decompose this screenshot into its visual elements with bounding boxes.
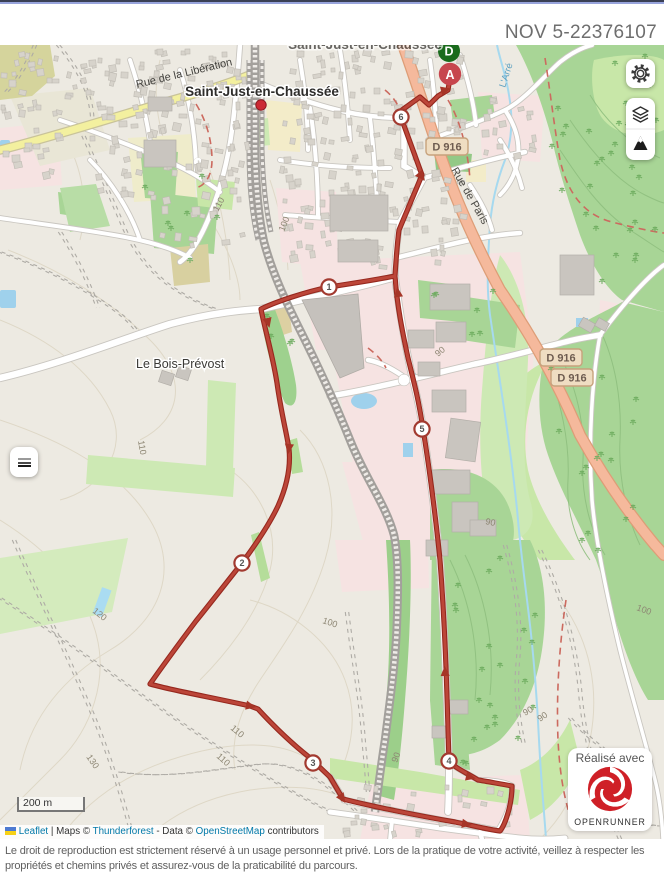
- svg-text:1: 1: [326, 282, 331, 292]
- svg-text:5: 5: [419, 424, 424, 434]
- svg-text:90: 90: [485, 516, 497, 528]
- svg-text:Saint-Just-en-Chaussée: Saint-Just-en-Chaussée: [288, 45, 442, 52]
- svg-text:A: A: [445, 68, 454, 82]
- svg-text:D 916: D 916: [432, 142, 461, 154]
- svg-text:4: 4: [446, 756, 451, 766]
- svg-text:D 916: D 916: [546, 353, 575, 365]
- svg-text:6: 6: [398, 112, 403, 122]
- svg-text:2: 2: [239, 558, 244, 568]
- svg-text:D 916: D 916: [557, 373, 586, 385]
- svg-text:Saint-Just-en-Chaussée: Saint-Just-en-Chaussée: [185, 84, 339, 99]
- svg-text:D: D: [444, 45, 453, 59]
- svg-text:Le Bois-Prévost: Le Bois-Prévost: [136, 357, 225, 371]
- svg-text:3: 3: [310, 758, 315, 768]
